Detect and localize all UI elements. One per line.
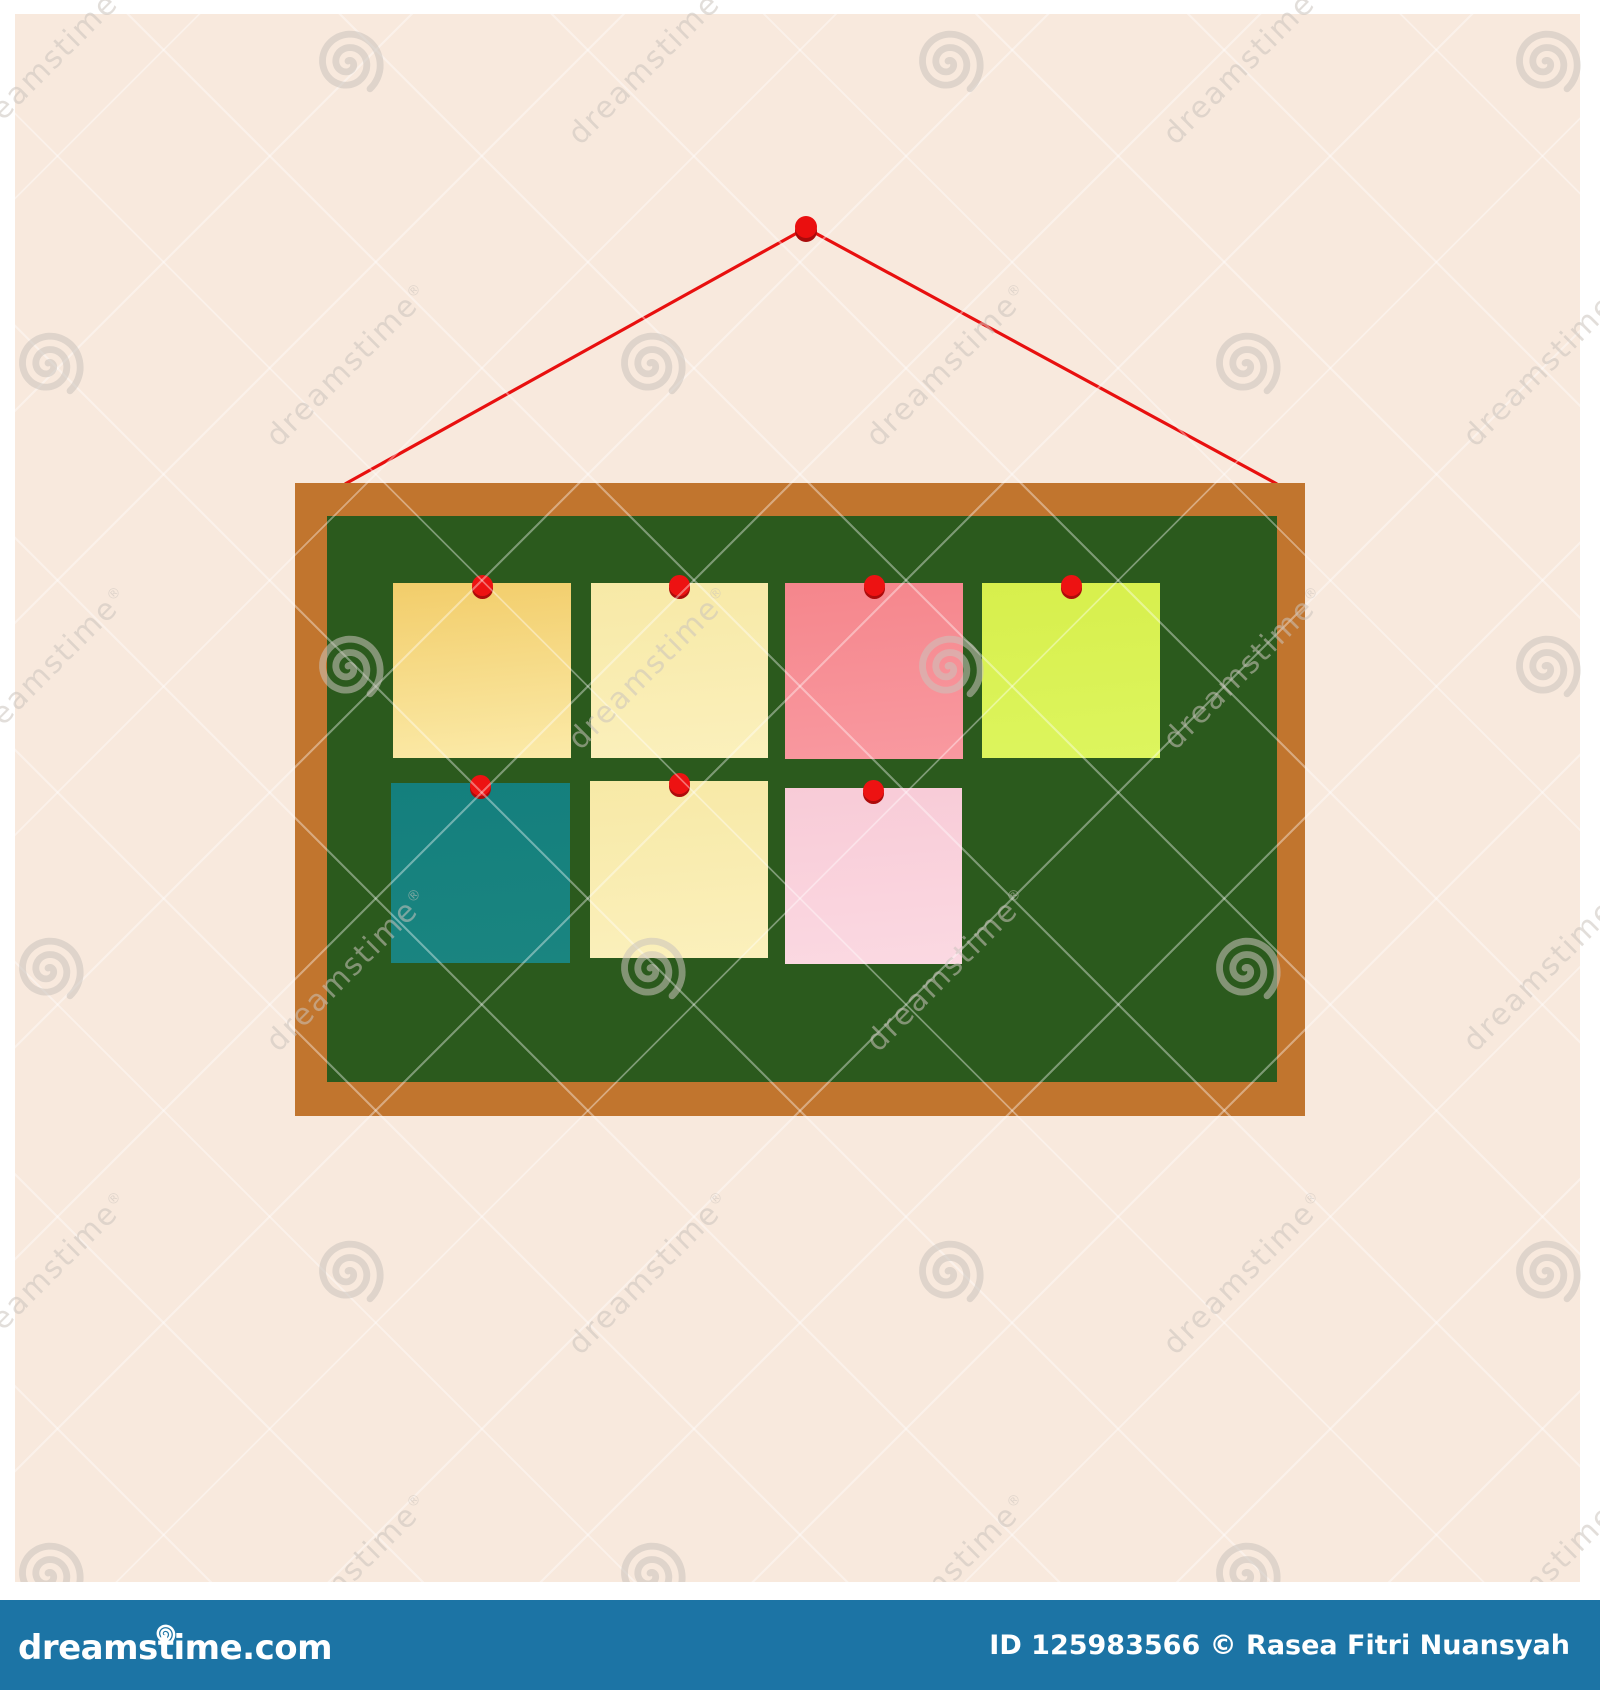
push-pin-icon [1061, 575, 1082, 599]
push-pin-cap [864, 575, 885, 596]
sticky-note-pink [785, 788, 962, 964]
push-pin-icon [669, 773, 690, 797]
push-pin-cap [470, 775, 491, 796]
string-left [345, 228, 806, 484]
push-pin-cap [669, 773, 690, 794]
sticky-note-lime [982, 583, 1160, 758]
stock-image-canvas: dreamstime®dreamstime®dreamstime®dreamst… [0, 0, 1600, 1690]
notice-board-surface [327, 516, 1277, 1082]
push-pin-cap [472, 575, 493, 596]
dreamstime-logo: dreamstime.com [18, 1600, 332, 1690]
dreamstime-spiral-icon [154, 1623, 176, 1645]
push-pin-icon [669, 575, 690, 599]
image-credit: ID 125983566 © Rasea Fitri Nuansyah [989, 1600, 1570, 1690]
sticky-note-gold [393, 583, 571, 758]
push-pin-icon [472, 575, 493, 599]
push-pin-cap [1061, 575, 1082, 596]
push-pin-cap [863, 780, 884, 801]
string-right [806, 228, 1277, 484]
watermark-bottom-bar: dreamstime.com ID 125983566 © Rasea Fitr… [0, 1600, 1600, 1690]
sticky-note-cream [591, 583, 768, 758]
push-pin-icon [863, 780, 884, 804]
push-pin-icon [864, 575, 885, 599]
push-pin-icon [470, 775, 491, 799]
sticky-note-teal [391, 783, 570, 963]
sticky-note-salmon [785, 583, 963, 759]
hanging-string-graphic [0, 0, 1600, 520]
wall-nail-icon [795, 216, 817, 238]
sticky-note-cream-2 [590, 781, 768, 958]
push-pin-cap [669, 575, 690, 596]
notice-board-frame [295, 483, 1305, 1116]
